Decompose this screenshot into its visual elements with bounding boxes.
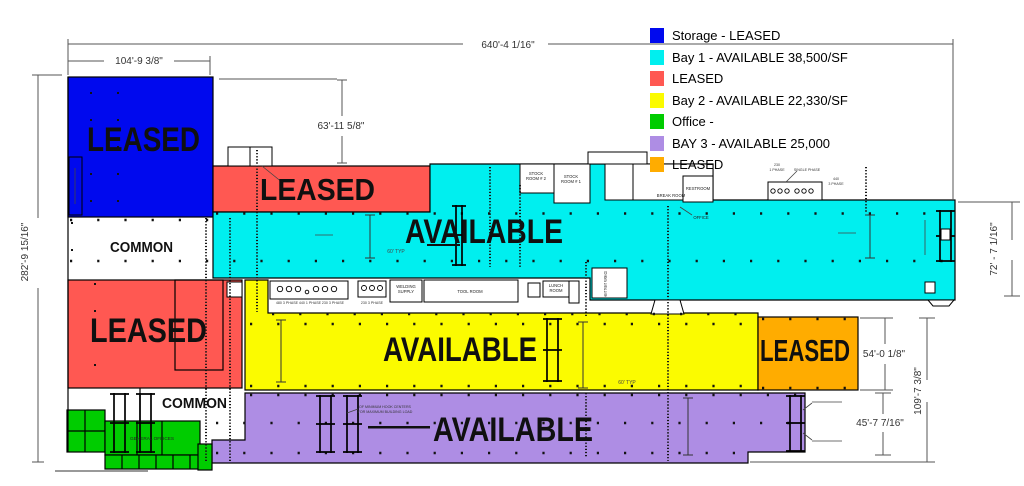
label-bay2-available: AVAILABLE — [383, 331, 537, 369]
dim-bay3-depth: 45'-7 7/16" — [856, 393, 904, 455]
label-common-upper: COMMON — [110, 240, 173, 256]
svg-text:45'-7 7/16": 45'-7 7/16" — [856, 418, 904, 429]
legend-label-bay2: Bay 2 - AVAILABLE 22,330/SF — [672, 93, 848, 108]
general-offices-label: GENERAL OFFICES — [130, 436, 174, 441]
legend-swatch-bay3 — [650, 136, 664, 151]
floor-plan-drawing: LEASED LEASED AVAILABLE LEASED AVAILABLE… — [0, 0, 1024, 486]
panel-230a-label: 230 3 PHASE — [322, 301, 345, 305]
legend-label-office: Office - — [672, 114, 714, 129]
panel-230b-label: 230 3 PHASE — [361, 301, 384, 305]
legend-item-storage: Storage - LEASED — [650, 28, 780, 43]
break-room-label: BREAK ROOM — [657, 193, 686, 198]
legend-label-leased-red: LEASED — [672, 71, 723, 86]
typ-dim-bay1: 60' TYP — [387, 249, 405, 255]
dim-storage-width: 104'-9 3/8" — [68, 56, 210, 75]
svg-text:54'-0 1/8": 54'-0 1/8" — [863, 349, 906, 360]
legend-label-bay3: BAY 3 - AVAILABLE 25,000 — [672, 136, 830, 151]
legend-item-leased-red: LEASED — [650, 71, 723, 86]
legend-item-bay2: Bay 2 - AVAILABLE 22,330/SF — [650, 93, 848, 108]
label-bay3-available: AVAILABLE — [433, 411, 593, 449]
legend-item-bay1: Bay 1 - AVAILABLE 38,500/SF — [650, 50, 848, 65]
typ-dim-bay2: 60' TYP — [618, 380, 636, 386]
legend-swatch-storage — [650, 28, 664, 43]
leasing-floor-plan: LEASED LEASED AVAILABLE LEASED AVAILABLE… — [0, 0, 1024, 486]
svg-text:FOR MAXIMUM BUILDING LOAD: FOR MAXIMUM BUILDING LOAD — [358, 410, 413, 414]
label-leased-lower: LEASED — [90, 312, 207, 350]
legend-item-office: Office - — [650, 114, 714, 129]
panel-440-label: 440 1 PHASE — [299, 301, 322, 305]
svg-text:104'-9 3/8": 104'-9 3/8" — [115, 56, 163, 67]
svg-text:ROOM: ROOM — [549, 288, 563, 293]
heat-treat-box — [592, 268, 627, 298]
panel-480-label: 480 3 PHASE — [276, 301, 299, 305]
elec-230-label: 230 — [774, 163, 780, 167]
office-label: OFFICE — [693, 215, 709, 220]
legend-item-leased-orange: LEASED — [650, 157, 723, 172]
tool-room-label: TOOL ROOM — [457, 289, 483, 294]
label-storage-leased: LEASED — [87, 121, 200, 159]
svg-text:ROOM # 2: ROOM # 2 — [526, 176, 547, 181]
svg-text:3 PHASE: 3 PHASE — [828, 182, 844, 186]
legend-label-bay1: Bay 1 - AVAILABLE 38,500/SF — [672, 50, 848, 65]
label-leased-orange: LEASED — [760, 333, 850, 368]
legend-swatch-leased-red — [650, 71, 664, 86]
legend-item-bay3: BAY 3 - AVAILABLE 25,000 — [650, 136, 830, 151]
legend-swatch-bay2 — [650, 93, 664, 108]
svg-text:SUPPLY: SUPPLY — [398, 289, 414, 294]
legend-swatch-office — [650, 114, 664, 129]
label-leased-upper: LEASED — [260, 172, 375, 207]
svg-text:ROOM # 1: ROOM # 1 — [561, 179, 582, 184]
label-common-lower: COMMON — [162, 396, 227, 412]
svg-text:640'-4 1/16": 640'-4 1/16" — [481, 40, 535, 51]
svg-text:1 PHASE: 1 PHASE — [769, 168, 785, 172]
svg-text:282'-9 15/16": 282'-9 15/16" — [20, 222, 31, 281]
heat-treat-label: HEAT TREAT FURNACE — [603, 271, 608, 297]
legend-swatch-leased-orange — [650, 157, 664, 172]
dim-orange-depth: 54'-0 1/8" — [860, 318, 906, 390]
legend: Storage - LEASED Bay 1 - AVAILABLE 38,50… — [650, 28, 848, 172]
restroom-label: RESTROOM — [686, 186, 711, 191]
elec-440-label: 440 — [833, 177, 839, 181]
crane-note: OF MINIMUM HOOK CENTERS — [359, 405, 412, 409]
legend-swatch-bay1 — [650, 50, 664, 65]
legend-label-leased-orange: LEASED — [672, 157, 723, 172]
svg-text:109'-7 3/8": 109'-7 3/8" — [913, 367, 924, 415]
elec-single-phase-label: SINGLE PHASE — [794, 168, 821, 172]
dim-bay1-depth: 72' - 7 1/16" — [958, 202, 1020, 296]
svg-text:72' - 7 1/16": 72' - 7 1/16" — [989, 222, 1000, 276]
svg-text:63'-11 5/8": 63'-11 5/8" — [318, 121, 365, 132]
dim-overall-depth: 282'-9 15/16" — [20, 75, 62, 462]
legend-label-storage: Storage - LEASED — [672, 28, 780, 43]
